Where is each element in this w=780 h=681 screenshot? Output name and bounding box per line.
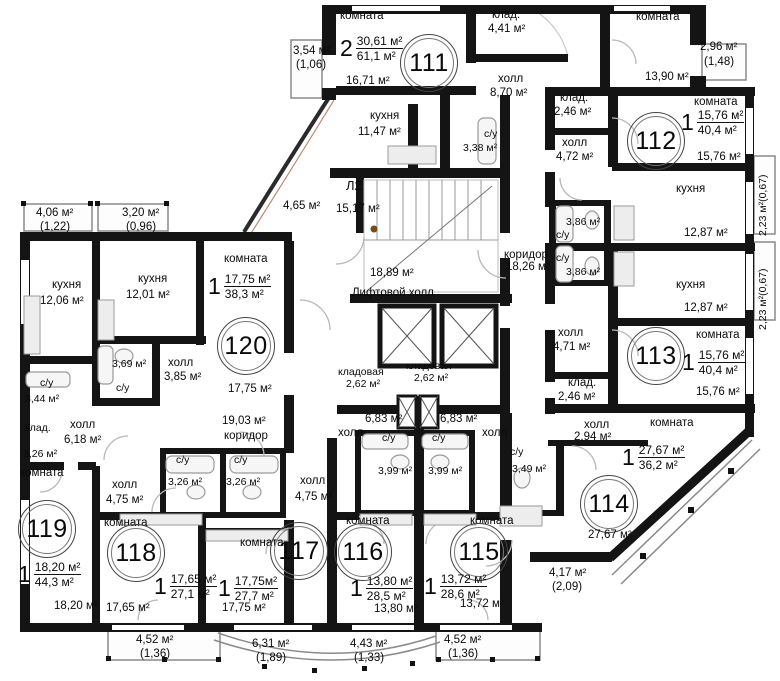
- storage-right-area: 2,62 м²: [414, 373, 448, 385]
- apt-118-wc-area: 3,26 м²: [168, 477, 202, 489]
- apt-119-hall-label: холл: [70, 419, 95, 432]
- apt-118-areas: 1 17,65 м²27,1 м²: [154, 572, 217, 602]
- apt-118-balcony-coeff: (1,36): [140, 648, 170, 661]
- apt-113-number: 113: [627, 327, 685, 385]
- apt-119-storage-area: 3,26 м²: [23, 449, 57, 461]
- apt-111-storage-area: 4,41 м²: [488, 23, 525, 36]
- stair-id: Л2: [346, 179, 362, 194]
- lift-shafts: [380, 306, 496, 366]
- apt-119-number: 119: [18, 500, 76, 558]
- apt-114-areas: 1 27,67 м²36,2 м²: [622, 443, 685, 473]
- apt-120-balcony-coeff: (0,96): [126, 221, 156, 234]
- storage-left-label: кладовая: [338, 367, 384, 379]
- apt-119-balcony-area: 4,06 м²: [36, 207, 73, 220]
- apt-111-hall-area: 8,70 м²: [490, 87, 527, 100]
- apt-116-room-area: 13,80 м²: [374, 603, 418, 616]
- apt-112-kitchen-label: кухня: [676, 183, 705, 196]
- apt-112-hall-area: 4,72 м²: [556, 151, 593, 164]
- apt-111-balcony-area: 3,54 м²: [293, 45, 330, 58]
- apt-120-hall-label: холл: [168, 357, 193, 370]
- corridor-right-area: 18,26 м²: [506, 261, 550, 274]
- apt-119-wc-area: 3,44 м²: [25, 394, 59, 406]
- apt-115-balcony-area: 4,52 м²: [444, 634, 481, 647]
- apt-114-wc-area: 3,49 м²: [512, 464, 546, 476]
- apt-111-room2-area: 13,90 м²: [645, 71, 689, 84]
- apt-120-hall-area: 3,85 м²: [164, 371, 201, 384]
- apt-113-balcony-area: 2,23 м²(0,67): [758, 269, 770, 331]
- apt-112-areas: 1 15,76 м²40,4 м²: [681, 108, 744, 138]
- apt-115-room-area: 13,72 м²: [460, 598, 504, 611]
- apt-114-wc-label: с/у: [510, 447, 523, 459]
- apt-111-hall-label: холл: [498, 73, 523, 86]
- apt-112-kitchen-area: 12,87 м²: [684, 227, 728, 240]
- apt-112-wc-area: 3,86 м²: [566, 217, 600, 229]
- apt-120-kitchen-label: кухня: [138, 273, 167, 286]
- stair-marker-dot: [371, 226, 378, 233]
- apt-117-number: 117: [270, 522, 328, 580]
- apt-113-areas: 1 15,76 м²40,4 м²: [682, 348, 745, 378]
- apt-117-wc-area: 3,26 м²: [226, 477, 260, 489]
- apt-119-kitchen-label: кухня: [52, 279, 81, 292]
- apt-117-balcony-area: 6,31 м²: [252, 638, 289, 651]
- lift-hall-label: Лифтовой холл: [352, 287, 434, 300]
- apt-114-number: 114: [580, 475, 638, 533]
- apt-113-room-label: комната: [696, 329, 740, 342]
- apt-111-room1-label: комната: [340, 10, 384, 23]
- apt-111-kitchen-area: 11,47 м²: [358, 126, 401, 139]
- apt-111-areas: 2 30,61 м²61,1 м²: [340, 34, 403, 64]
- lift-hall-area: 18,89 м²: [370, 267, 414, 280]
- apt-116-balcony-coeff: (1,33): [354, 652, 384, 665]
- apt-111-kitchen-label: кухня: [370, 110, 399, 123]
- apt-114-hall-area: 2,94 м²: [574, 431, 611, 444]
- apt-120-wc-area: 3,69 м²: [112, 359, 146, 371]
- apt-114-room-label: комната: [650, 417, 694, 430]
- corridor-left-area: 19,03 м²: [222, 415, 266, 428]
- apt-116-hall-label: холл: [338, 427, 363, 440]
- apt-112-storage-label: клад.: [560, 92, 588, 105]
- apt-115-wc-area: 3,99 м²: [428, 466, 462, 478]
- apt-114-balcony-area: 4,17 м²: [549, 567, 586, 580]
- apt-120-room-area: 17,75 м²: [228, 383, 272, 396]
- apt-113-hall-area: 4,71 м²: [553, 341, 590, 354]
- apt-116-number: 116: [334, 523, 392, 581]
- apt-118-hall-area: 4,75 м²: [106, 494, 143, 507]
- apt-118-balcony-area: 4,52 м²: [136, 634, 173, 647]
- apt-120-wc-label: с/у: [116, 383, 129, 395]
- apt-113-storage-label: клад.: [568, 377, 596, 390]
- apt-119-areas: 1 18,20 м²44,3 м²: [18, 560, 81, 590]
- apt-120-balcony-area: 3,20 м²: [122, 207, 159, 220]
- apt-119-balcony-coeff: (1,22): [40, 221, 70, 234]
- apt-116-hall-area: 6,83 м²: [365, 413, 402, 426]
- corridor-left-label: коридор: [224, 430, 268, 443]
- corridor-right-label: коридор: [504, 249, 548, 262]
- storage-right-label: кладовая: [406, 361, 452, 373]
- apt-115-wc-label: с/у: [432, 433, 445, 445]
- apt-120-kitchen-area: 12,01 м²: [126, 289, 170, 302]
- stair-area: 15,17 м²: [336, 203, 380, 216]
- apt-120-number: 120: [217, 317, 275, 375]
- apt-116-wc-area: 3,99 м²: [378, 466, 412, 478]
- apt-112-number: 112: [627, 112, 685, 170]
- apt-117-areas: 1 17,75м²27,7 м²: [218, 574, 278, 604]
- apt-117-wc-label: с/у: [234, 455, 247, 467]
- apt-111-room2-balcony-coeff: (1,48): [704, 56, 734, 69]
- apt-119-hall-area: 6,18 м²: [64, 434, 101, 447]
- apt-117-hall-area: 4,75 м²: [295, 491, 332, 504]
- apt-117-hall-label: холл: [300, 475, 325, 488]
- apt-114-balcony-coeff: (2,09): [552, 581, 582, 594]
- apt-111-wc-label: с/у: [484, 129, 497, 141]
- apt-120-areas: 1 17,75 м²38,3 м²: [208, 272, 271, 302]
- apt-119-storage-label: клад.: [25, 423, 51, 435]
- apt-111-balcony-coeff: (1,06): [296, 59, 326, 72]
- apt-114-room-area: 27,67 м²: [588, 529, 632, 542]
- apt-120-room-label: комната: [224, 253, 268, 266]
- apt-119-room-label: комната: [20, 467, 64, 480]
- apt-119-wc-label: с/у: [40, 378, 53, 390]
- apt-116-wc-label: с/у: [382, 433, 395, 445]
- apt-116-balcony-area: 4,43 м²: [350, 638, 387, 651]
- apt-113-room-area: 15,76 м²: [696, 386, 740, 399]
- apt-111-storage-label: клад.: [492, 9, 520, 22]
- apt-113-kitchen-area: 12,87 м²: [684, 302, 728, 315]
- apt-113-storage-area: 2,46 м²: [558, 391, 595, 404]
- apt-118-wc-label: с/у: [176, 455, 189, 467]
- apt-111-room2-balcony: 2,96 м²: [700, 41, 737, 54]
- apt-116-areas: 1 13,80 м²28,5 м²: [350, 574, 413, 604]
- storage-left-area: 2,62 м²: [346, 379, 380, 391]
- apt-111-number: 111: [400, 34, 458, 92]
- apt-113-wc-area: 3,86 м²: [566, 267, 600, 279]
- apt-117-balcony-coeff: (1,89): [256, 652, 286, 665]
- apt-111-wc-area: 3,38 м²: [463, 143, 497, 155]
- apt-113-wc-label: с/у: [556, 253, 569, 265]
- vestibule-area: 4,65 м²: [283, 200, 320, 213]
- apt-114-hall-label: холл: [584, 419, 609, 432]
- apt-115-hall-label: холл: [482, 427, 507, 440]
- apt-113-hall-label: холл: [558, 327, 583, 340]
- apt-115-balcony-coeff: (1,36): [448, 648, 478, 661]
- apt-111-room2-label: комната: [636, 11, 680, 24]
- apt-112-room-area: 15,76 м²: [697, 151, 741, 164]
- apt-112-hall-label: холл: [562, 137, 587, 150]
- apt-112-storage-area: 2,46 м²: [554, 106, 591, 119]
- apt-119-kitchen-area: 12,06 м²: [40, 295, 84, 308]
- apt-118-hall-label: холл: [112, 479, 137, 492]
- apt-113-kitchen-label: кухня: [676, 279, 705, 292]
- apt-119-room-area: 18,20 м²: [54, 600, 98, 613]
- floor-plan: Л2 15,17 м² 4,65 м² 18,89 м² Лифтовой хо…: [0, 0, 780, 681]
- apt-117-room-area: 17,75 м²: [222, 602, 266, 615]
- apt-115-hall-area: 6,83 м²: [440, 413, 477, 426]
- apt-112-wc-label: с/у: [556, 230, 569, 242]
- apt-112-balcony-area: 2,23 м²(0,67): [758, 175, 770, 237]
- apt-118-room-area: 17,65 м²: [106, 602, 150, 615]
- apt-111-room1-area: 16,71 м²: [346, 75, 390, 88]
- apt-112-room-label: комната: [694, 96, 738, 109]
